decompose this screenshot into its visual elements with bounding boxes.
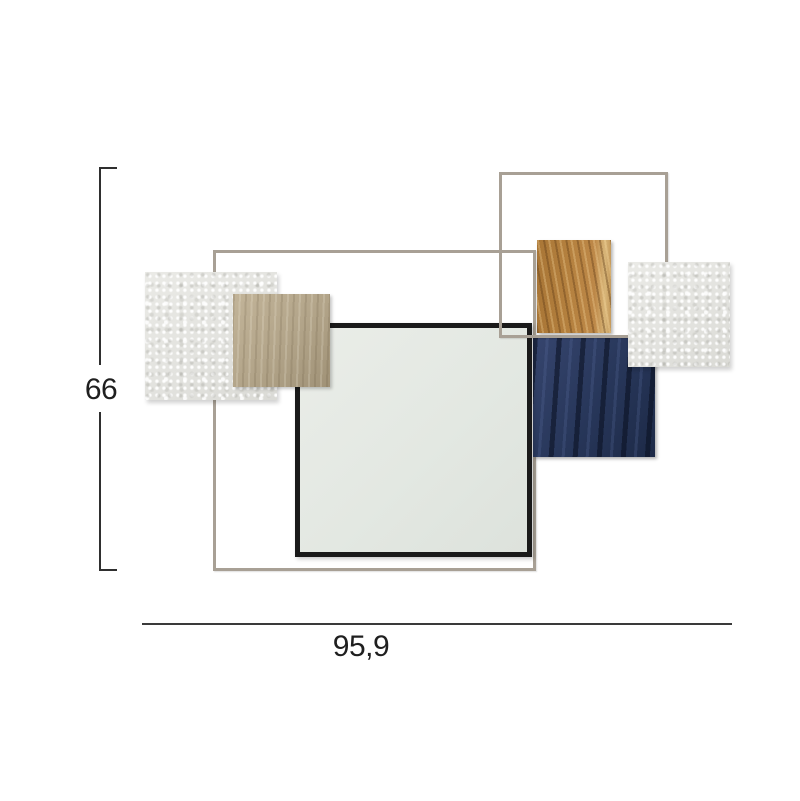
width-dimension-label: 95,9 <box>301 632 421 662</box>
mirror-glass <box>300 328 527 552</box>
height-dimension-line-lower <box>99 412 101 571</box>
height-dimension-label: 66 <box>68 375 134 405</box>
width-dimension-line <box>142 623 732 625</box>
product-dimension-image: 66 95,9 <box>0 0 800 801</box>
textured-white-panel-right <box>628 262 730 367</box>
height-dimension-top-tick <box>99 167 117 169</box>
height-dimension-bottom-tick <box>99 569 117 571</box>
height-dimension-line-upper <box>99 167 101 365</box>
beige-wood-panel <box>233 294 330 387</box>
mirror <box>295 323 532 557</box>
